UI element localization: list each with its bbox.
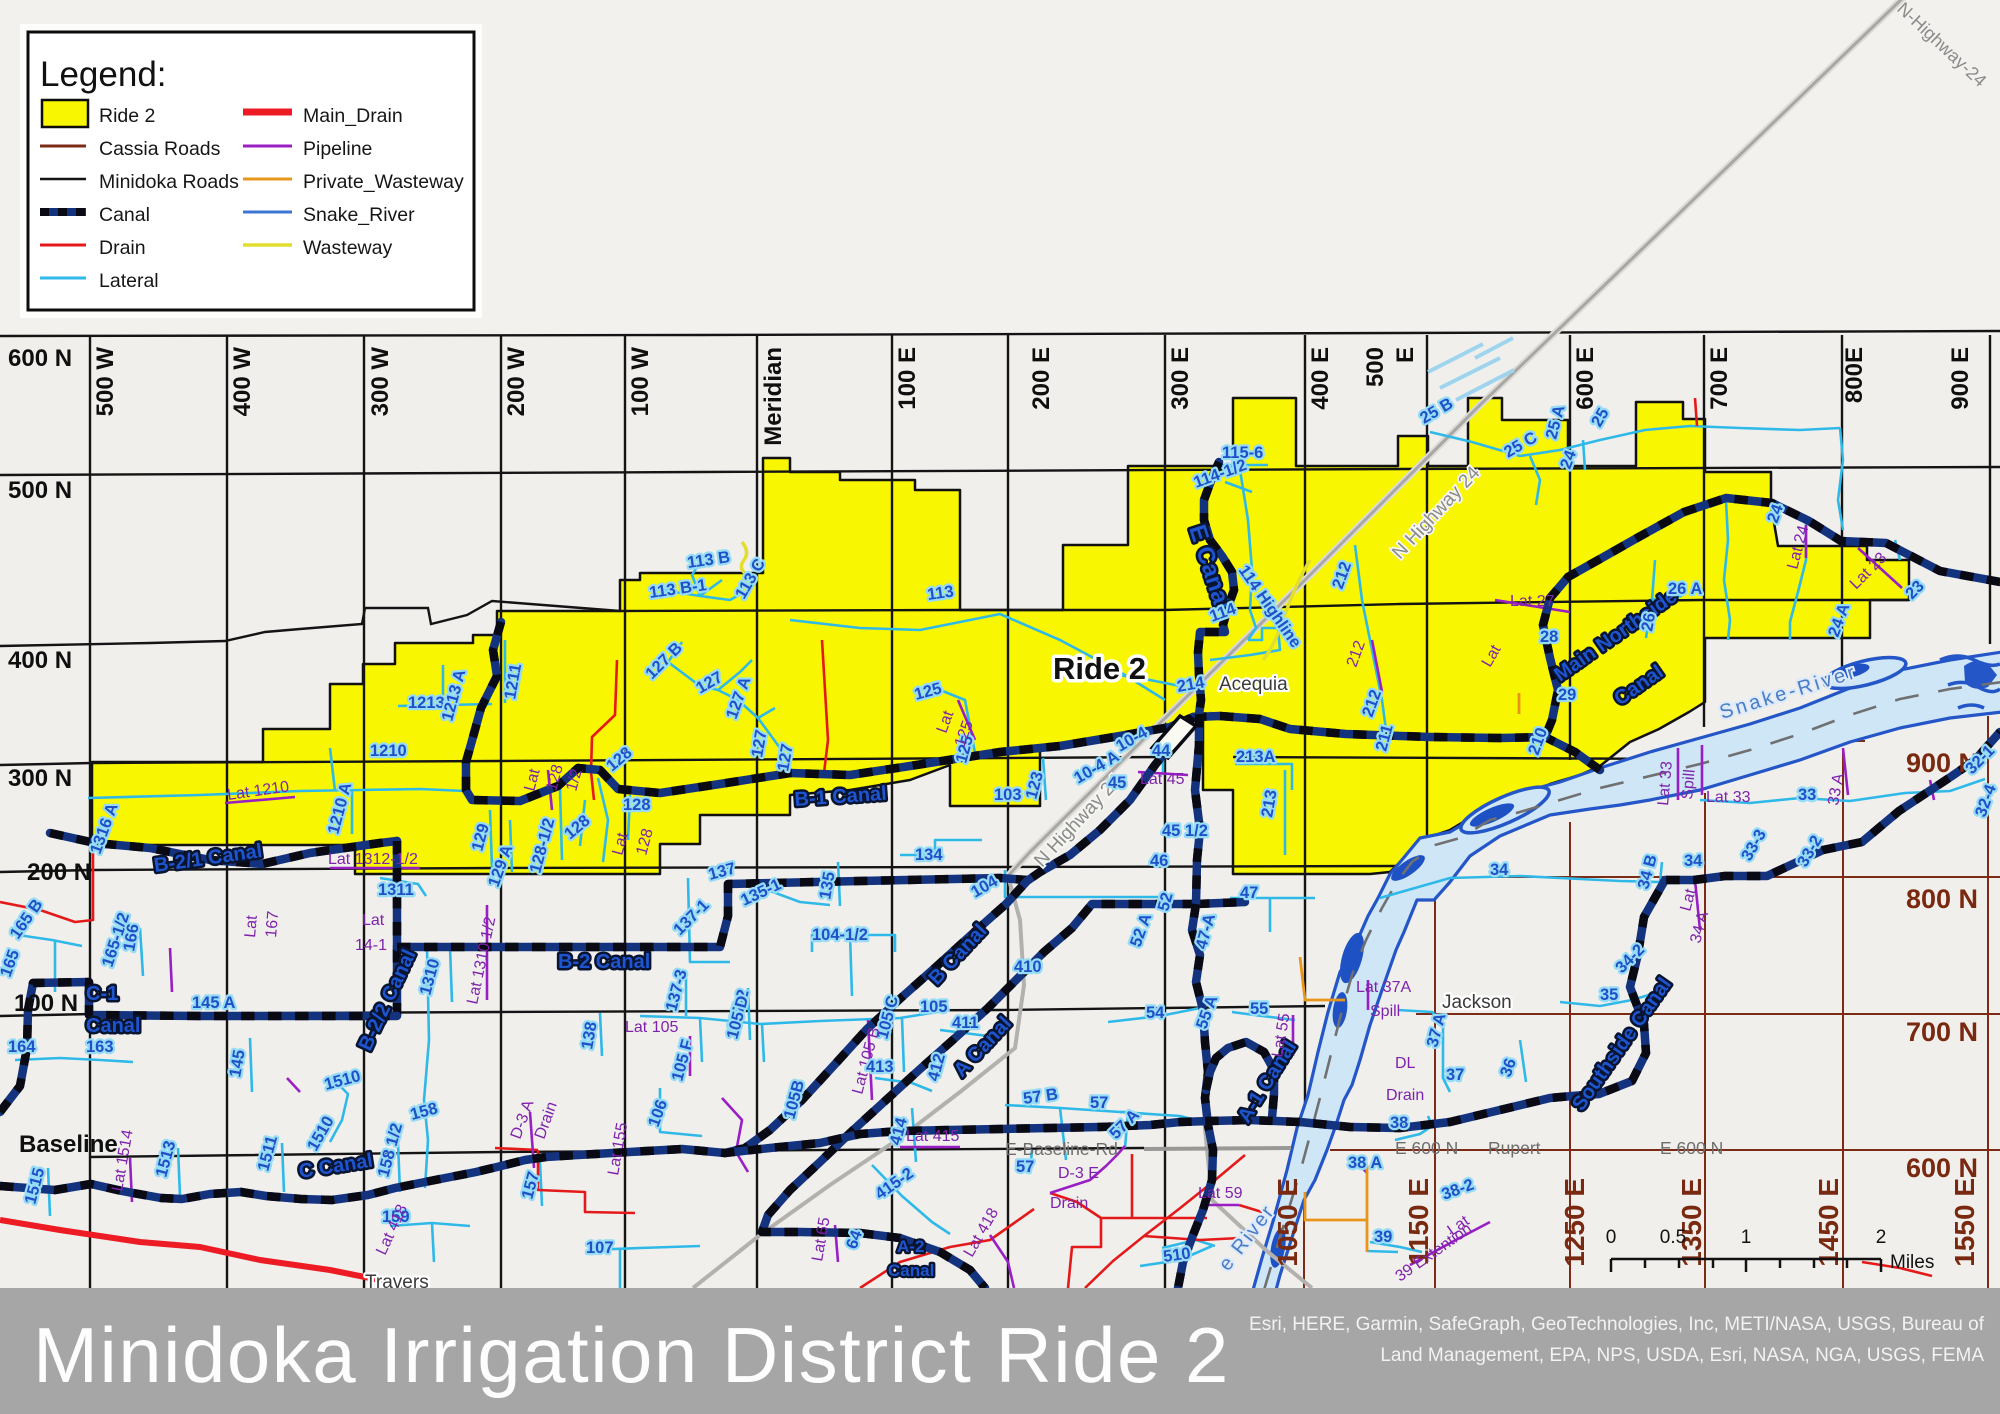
svg-text:29: 29	[1558, 686, 1576, 704]
svg-text:104-1/2: 104-1/2	[812, 926, 868, 944]
svg-text:700 E: 700 E	[1706, 347, 1733, 410]
svg-text:Drain: Drain	[1050, 1195, 1088, 1212]
svg-text:Rupert: Rupert	[1488, 1138, 1541, 1158]
svg-text:200 W: 200 W	[503, 347, 530, 417]
svg-text:28: 28	[1540, 628, 1558, 646]
svg-text:Canal: Canal	[888, 1261, 934, 1280]
svg-text:500 W: 500 W	[92, 347, 119, 417]
svg-text:34: 34	[1684, 852, 1703, 870]
svg-text:Acequia: Acequia	[1219, 674, 1288, 695]
svg-text:411: 411	[952, 1014, 979, 1032]
svg-text:0.5: 0.5	[1660, 1227, 1686, 1248]
svg-text:500: 500	[1362, 347, 1389, 387]
svg-text:1350 E: 1350 E	[1676, 1178, 1707, 1267]
svg-text:128: 128	[623, 796, 651, 814]
svg-text:1210: 1210	[370, 742, 407, 760]
svg-text:1550 E: 1550 E	[1949, 1178, 1980, 1267]
svg-text:Lat 59: Lat 59	[1198, 1185, 1243, 1202]
svg-text:45 1/2: 45 1/2	[1162, 822, 1208, 840]
svg-text:C-1: C-1	[86, 983, 118, 1005]
svg-text:1450 E: 1450 E	[1813, 1178, 1844, 1267]
svg-text:Minidoka Roads: Minidoka Roads	[99, 171, 239, 193]
svg-text:A-2: A-2	[897, 1237, 924, 1256]
svg-text:1311: 1311	[378, 881, 414, 899]
svg-text:Pipeline: Pipeline	[303, 138, 372, 160]
svg-text:300 E: 300 E	[1167, 347, 1194, 410]
svg-text:Minidoka Irrigation District R: Minidoka Irrigation District Ride 2	[33, 1311, 1230, 1399]
svg-text:E 600 N: E 600 N	[1395, 1138, 1458, 1158]
svg-text:E-Baseline-Rd: E-Baseline-Rd	[1005, 1139, 1118, 1159]
svg-text:410: 410	[1014, 958, 1042, 976]
svg-text:Esri, HERE, Garmin, SafeGraph,: Esri, HERE, Garmin, SafeGraph, GeoTechno…	[1249, 1314, 1985, 1335]
svg-text:Lat 33: Lat 33	[1706, 789, 1751, 806]
svg-text:Drain: Drain	[99, 237, 146, 259]
svg-text:145 A: 145 A	[192, 994, 236, 1012]
svg-text:400 E: 400 E	[1307, 347, 1334, 410]
svg-text:E: E	[1392, 347, 1419, 363]
svg-text:134: 134	[915, 846, 943, 864]
svg-text:55: 55	[1250, 1000, 1268, 1018]
svg-text:100 N: 100 N	[14, 990, 78, 1017]
svg-text:100 W: 100 W	[627, 347, 654, 417]
svg-text:Legend:: Legend:	[40, 55, 167, 94]
svg-text:1213: 1213	[408, 694, 445, 712]
svg-text:Lat: Lat	[242, 914, 261, 938]
svg-text:Drain: Drain	[1386, 1087, 1424, 1104]
svg-text:103: 103	[994, 786, 1022, 804]
svg-text:Lat 27: Lat 27	[1510, 593, 1555, 610]
svg-text:1250 E: 1250 E	[1559, 1178, 1590, 1267]
svg-text:Lat 37A: Lat 37A	[1356, 979, 1411, 996]
svg-text:DL: DL	[1395, 1055, 1416, 1072]
svg-text:400 N: 400 N	[8, 647, 72, 674]
svg-text:14-1: 14-1	[355, 937, 387, 954]
svg-text:Lat 415: Lat 415	[906, 1128, 959, 1145]
svg-text:600 N: 600 N	[8, 345, 72, 372]
svg-text:100 E: 100 E	[894, 347, 921, 410]
svg-text:200 N: 200 N	[27, 859, 91, 886]
svg-text:Main_Drain: Main_Drain	[303, 105, 403, 127]
svg-text:Miles: Miles	[1890, 1252, 1934, 1273]
svg-text:39: 39	[1374, 1228, 1392, 1246]
svg-text:B-2 Canal: B-2 Canal	[558, 951, 650, 973]
svg-text:107: 107	[586, 1239, 614, 1257]
svg-text:Private_Wasteway: Private_Wasteway	[303, 171, 464, 193]
svg-text:Meridian: Meridian	[760, 347, 787, 446]
svg-text:Lateral: Lateral	[99, 270, 159, 292]
svg-text:34: 34	[1490, 861, 1509, 879]
svg-text:1050 E: 1050 E	[1272, 1178, 1303, 1267]
svg-text:Canal: Canal	[99, 204, 150, 226]
svg-text:0: 0	[1606, 1227, 1617, 1248]
svg-text:38: 38	[1390, 1114, 1408, 1132]
svg-text:213A: 213A	[1236, 748, 1276, 766]
svg-text:2: 2	[1876, 1227, 1887, 1248]
svg-text:300 W: 300 W	[367, 347, 394, 417]
svg-text:164: 164	[8, 1038, 36, 1056]
svg-text:Snake_River: Snake_River	[303, 204, 415, 226]
svg-text:Spill: Spill	[1679, 769, 1699, 801]
svg-text:35: 35	[1600, 986, 1618, 1004]
svg-text:200 E: 200 E	[1028, 347, 1055, 410]
svg-text:Lat: Lat	[362, 912, 385, 929]
svg-text:Ride 2: Ride 2	[99, 105, 155, 127]
svg-text:26: 26	[1638, 611, 1659, 632]
svg-text:800E: 800E	[1841, 347, 1868, 403]
svg-text:113: 113	[926, 582, 955, 604]
svg-text:33: 33	[1798, 786, 1816, 804]
svg-text:Spill: Spill	[1370, 1003, 1400, 1020]
svg-text:700 N: 700 N	[1906, 1017, 1978, 1047]
svg-text:600 E: 600 E	[1572, 347, 1599, 410]
svg-text:Cassia Roads: Cassia Roads	[99, 138, 221, 160]
svg-text:413: 413	[866, 1058, 894, 1076]
svg-text:45: 45	[1108, 774, 1126, 792]
svg-text:Jackson: Jackson	[1442, 992, 1512, 1013]
svg-text:800 N: 800 N	[1906, 884, 1978, 914]
svg-text:37: 37	[1446, 1066, 1464, 1084]
svg-text:44: 44	[1152, 742, 1171, 760]
svg-text:Canal: Canal	[86, 1015, 140, 1037]
svg-text:54: 54	[1146, 1004, 1165, 1022]
svg-text:105: 105	[920, 998, 948, 1016]
svg-text:163: 163	[86, 1038, 114, 1056]
svg-text:900 E: 900 E	[1947, 347, 1974, 410]
svg-text:400 W: 400 W	[229, 347, 256, 417]
svg-text:Baseline: Baseline	[19, 1131, 118, 1158]
svg-text:300 N: 300 N	[8, 765, 72, 792]
svg-text:Ride 2: Ride 2	[1053, 651, 1146, 686]
svg-text:510: 510	[1162, 1244, 1192, 1266]
svg-text:Lat 45: Lat 45	[1140, 771, 1185, 788]
svg-text:57: 57	[1090, 1094, 1108, 1112]
svg-text:D-3 E: D-3 E	[1058, 1165, 1099, 1182]
svg-text:500 N: 500 N	[8, 477, 72, 504]
svg-text:47: 47	[1240, 884, 1258, 902]
svg-text:Wasteway: Wasteway	[303, 237, 392, 259]
svg-text:E 600 N: E 600 N	[1660, 1138, 1723, 1158]
svg-text:38 A: 38 A	[1348, 1154, 1382, 1172]
svg-text:57: 57	[1016, 1158, 1034, 1176]
svg-text:26 A: 26 A	[1668, 580, 1702, 598]
svg-text:1: 1	[1741, 1227, 1752, 1248]
svg-text:Land Management, EPA, NPS, USD: Land Management, EPA, NPS, USDA, Esri, N…	[1380, 1345, 1984, 1366]
svg-text:Lat 1312-1/2: Lat 1312-1/2	[328, 851, 418, 868]
svg-text:46: 46	[1150, 852, 1168, 870]
svg-text:167: 167	[263, 910, 282, 938]
svg-text:Lat 105: Lat 105	[625, 1019, 678, 1036]
